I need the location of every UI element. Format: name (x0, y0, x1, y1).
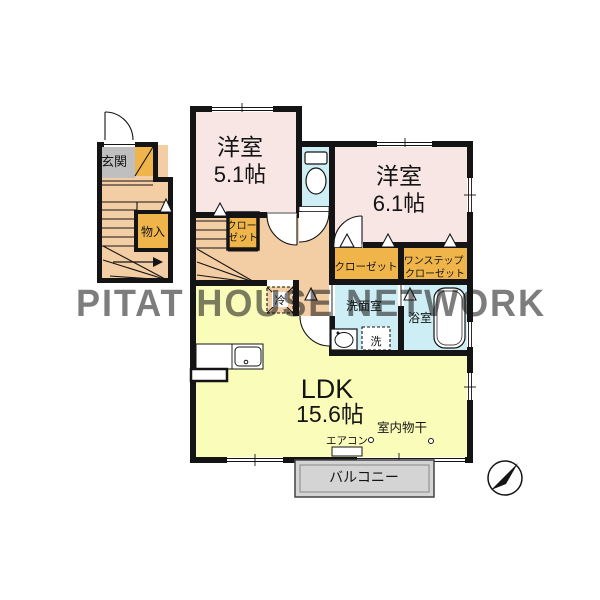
floor-plan: 玄関 物入 (0, 0, 600, 600)
storage-label: 物入 (141, 225, 165, 239)
toilet-fixture (305, 152, 327, 194)
entrance-wing: 玄関 物入 (97, 112, 173, 283)
western-room1-name: 洋室 (217, 134, 263, 160)
watermark-text: PITAT HOUSE NETWORK (76, 283, 546, 325)
ldk-size: 15.6帖 (296, 401, 364, 427)
laundry-hook-right (429, 439, 434, 444)
washroom-sink (331, 329, 357, 350)
ldk-name: LDK (301, 374, 354, 404)
western-room2-name: 洋室 (376, 163, 422, 189)
western-room2-size: 6.1帖 (373, 191, 426, 216)
balcony: バルコニー (295, 460, 434, 497)
entrance-label: 玄関 (101, 154, 127, 169)
window-top-room2 (377, 138, 432, 147)
balcony-label: バルコニー (329, 469, 399, 485)
entrance-door (104, 112, 135, 147)
closet2-label: クローゼット (335, 261, 398, 273)
compass (488, 461, 522, 495)
western-room1-size: 5.1帖 (214, 162, 267, 187)
floor-plan-drawing: 玄関 物入 (0, 0, 600, 600)
window-right-bathroom (467, 322, 473, 347)
kitchen-lower-unit (191, 369, 227, 381)
aircon-unit (332, 447, 362, 456)
washer-label: 洗 (371, 335, 382, 348)
washer-space: 洗 (362, 327, 390, 350)
aircon-label: エアコン (326, 435, 368, 447)
indoor-drying-label: 室内物干 (377, 420, 427, 435)
window-top-room1 (212, 103, 273, 112)
laundry-hook-left (369, 438, 374, 443)
